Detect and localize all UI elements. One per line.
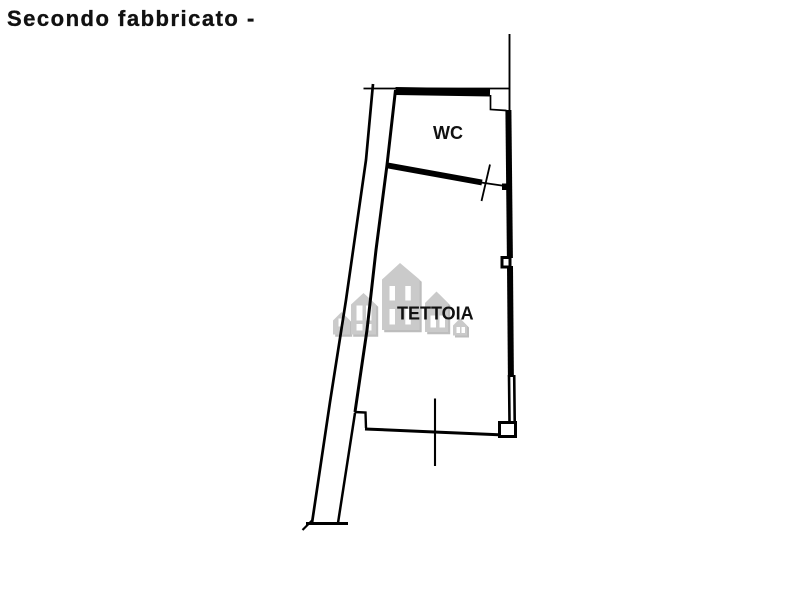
svg-text:WC: WC xyxy=(433,123,463,143)
svg-text:TETTOIA: TETTOIA xyxy=(397,304,474,324)
